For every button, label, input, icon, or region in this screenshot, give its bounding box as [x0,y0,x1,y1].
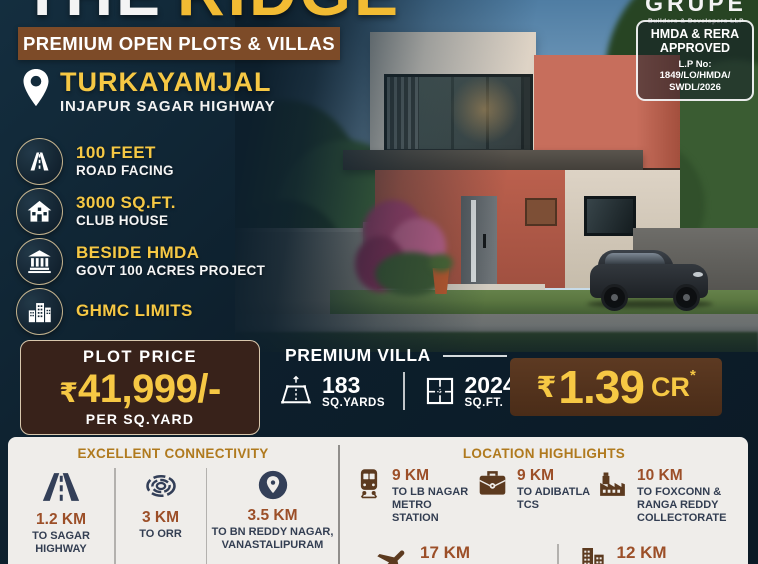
project-title: THERIDGE [22,0,401,30]
distance: 3 KM [142,509,179,526]
feature-text: BESIDE HMDA GOVT 100 ACRES PROJECT [76,243,265,280]
city-buildings-icon [16,288,63,335]
city-icon [577,544,609,564]
villa-builtup-unit: SQ.FT. [465,397,516,409]
feature-subtitle: GOVT 100 ACRES PROJECT [76,263,265,279]
road-icon [16,138,63,185]
feature-text: 3000 SQ.FT. CLUB HOUSE [76,193,176,230]
destination: TO ADIBATLA TCS [517,486,590,512]
location-pin-icon [256,468,290,502]
distance: 9 KM [517,467,590,484]
feature-title: 100 FEET [76,143,174,163]
approval-lp: L.P No: 1849/LO/HMDA/ SWDL/2026 [660,59,731,95]
poster: THERIDGE PREMIUM OPEN PLOTS & VILLAS TUR… [0,0,758,564]
villa-builtup: 2024 SQ.FT. [465,373,516,409]
plot-price-label: PLOT PRICE [83,348,197,367]
feature-text: 100 FEET ROAD FACING [76,143,174,180]
location-text: TURKAYAMJAL INJAPUR SAGAR HIGHWAY [60,68,275,115]
plot-price-amount: ₹ 41,999/- [59,369,221,409]
banner-text: PREMIUM OPEN PLOTS & VILLAS [23,33,335,55]
feature-ghmc: GHMC LIMITS [16,288,265,334]
highlight-texts: 9 KM TO ADIBATLA TCS [517,467,590,512]
banner: PREMIUM OPEN PLOTS & VILLAS [18,27,340,60]
connectivity-heading: EXCELLENT CONNECTIVITY [8,446,338,461]
floorplan-icon [423,374,457,408]
approval-lp-value1: 1849/LO/HMDA/ [660,70,731,82]
plot-price-box: PLOT PRICE ₹ 41,999/- PER SQ.YARD [20,340,260,435]
feature-subtitle: CLUB HOUSE [76,213,176,229]
connectivity-section: EXCELLENT CONNECTIVITY 1.2 KM TO SAGAR H… [8,437,338,564]
plot-price-unit: PER SQ.YARD [86,411,194,427]
distance: 3.5 KM [248,507,298,524]
villa-area-value: 183 [322,373,385,397]
feature-title: BESIDE HMDA [76,243,265,263]
highway-icon [40,468,82,506]
villa-area-unit: SQ.YARDS [322,397,385,409]
rupee-icon: ₹ [59,380,78,407]
rupee-icon: ₹ [536,370,556,404]
highlights-row1: 9 KM TO LB NAGAR METRO STATION 9 KM TO A… [340,461,748,526]
feature-road: 100 FEET ROAD FACING [16,138,265,184]
stats-divider [403,372,405,410]
project-title-word2: RIDGE [177,0,401,29]
highlight-item: 10 KM TO FOXCONN & RANGA REDDY COLLECTOR… [596,467,742,526]
distance: 12 KM [617,544,688,563]
feature-hmda: BESIDE HMDA GOVT 100 ACRES PROJECT [16,238,265,284]
factory-icon [596,467,629,500]
highlight-texts: 9 KM TO LB NAGAR METRO STATION [392,467,476,526]
distance: 9 KM [392,467,476,484]
highlight-item: 9 KM TO ADIBATLA TCS [476,467,596,526]
destination: TO LB NAGAR METRO STATION [392,486,476,526]
destination: TO ORR [139,528,182,541]
heading-rule [443,355,507,357]
brand-name: GRUPE [640,0,752,17]
feature-title: 3000 SQ.FT. [76,193,176,213]
villa-price-value: 1.39 [558,364,644,410]
feature-clubhouse: 3000 SQ.FT. CLUB HOUSE [16,188,265,234]
connectivity-item: 3 KM TO ORR [116,468,206,564]
highlights-section: LOCATION HIGHLIGHTS 9 KM TO LB NAGAR MET… [340,437,748,564]
feature-text: GHMC LIMITS [76,301,193,321]
info-card: EXCELLENT CONNECTIVITY 1.2 KM TO SAGAR H… [8,437,748,564]
destination: TO FOXCONN & RANGA REDDY COLLECTORATE [637,486,726,526]
feature-subtitle: ROAD FACING [76,163,174,179]
approval-badge: HMDA & RERA APPROVED L.P No: 1849/LO/HMD… [636,20,754,101]
villa-heading-text: PREMIUM VILLA [285,345,431,366]
approval-line1: HMDA & RERA [651,27,739,41]
connectivity-items: 1.2 KM TO SAGAR HIGHWAY 3 KM TO ORR [8,468,338,564]
connectivity-item: 3.5 KM TO BN REDDY NAGAR, VANASTALIPURAM [207,468,338,564]
plot-price-value: 41,999/- [78,369,221,409]
villa-heading: PREMIUM VILLA [285,345,507,366]
feature-title: GHMC LIMITS [76,301,193,321]
location-name: TURKAYAMJAL [60,68,275,96]
project-title-word1: THE [22,0,163,29]
distance: 1.2 KM [36,511,86,528]
highlight-item: 9 KM TO LB NAGAR METRO STATION [354,467,476,526]
highlight-item: 12 KM TO FAB CITY [577,544,688,564]
connectivity-item: 1.2 KM TO SAGAR HIGHWAY [8,468,114,564]
metro-icon [354,467,384,499]
destination: TO SAGAR HIGHWAY [32,530,90,556]
location-subtitle: INJAPUR SAGAR HIGHWAY [60,98,275,115]
highlights-heading: LOCATION HIGHLIGHTS [340,446,748,461]
villa-area: 183 SQ.YARDS [322,373,385,409]
approval-line2: APPROVED [660,41,730,55]
approval-lp-value2: SWDL/2026 [660,82,731,94]
villa-price-box: ₹ 1.39 CR * [510,358,722,416]
approval-lp-label: L.P No: [660,59,731,71]
govt-building-icon [16,238,63,285]
location-pin-icon [22,68,50,114]
orr-icon [143,468,179,504]
airplane-icon [374,544,412,564]
highlight-texts: 12 KM TO FAB CITY [617,544,688,564]
divider [557,544,559,564]
feature-list: 100 FEET ROAD FACING 3000 SQ.FT. CLUB HO… [16,138,265,338]
highlight-texts: 10 KM TO FOXCONN & RANGA REDDY COLLECTOR… [637,467,726,526]
villa-price-asterisk: * [690,367,696,384]
villa-price-suffix: CR [651,372,690,403]
villa-stats: 183 SQ.YARDS 2024 SQ.FT. [278,372,516,410]
plot-area-icon [278,373,314,409]
highlights-row2: 17 KM TO RAJIV GANDHI 12 KM TO FAB CITY [340,536,748,564]
location-block: TURKAYAMJAL INJAPUR SAGAR HIGHWAY [22,68,275,115]
distance: 10 KM [637,467,726,484]
highlight-item: 17 KM TO RAJIV GANDHI [374,544,549,564]
briefcase-icon [476,467,509,498]
villa-builtup-value: 2024 [465,373,516,397]
clubhouse-icon [16,188,63,235]
highlight-texts: 17 KM TO RAJIV GANDHI [420,544,521,564]
destination: TO BN REDDY NAGAR, VANASTALIPURAM [212,526,334,552]
distance: 17 KM [420,544,521,563]
